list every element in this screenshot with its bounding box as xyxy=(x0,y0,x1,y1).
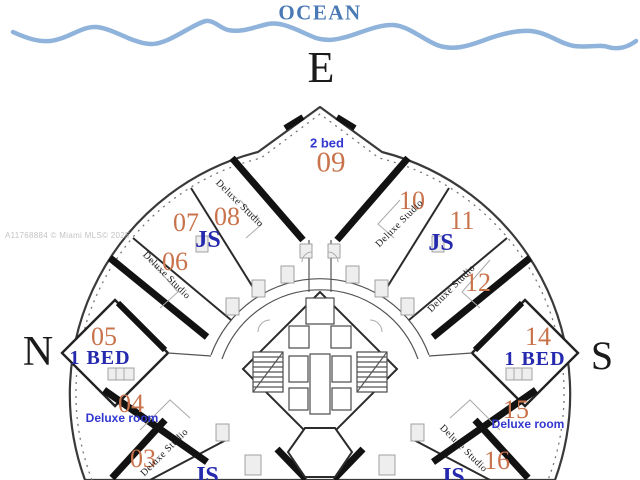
stairwell-right xyxy=(357,352,387,392)
unit-number-14: 14 xyxy=(525,324,551,350)
suite-label-bottom-left: JS xyxy=(193,464,218,480)
unit-type-05: 1 BED xyxy=(69,348,130,368)
ocean-label: OCEAN xyxy=(278,3,361,24)
floor-plan-page: OCEAN E N S A11768884 © Miami MLS© 2025 … xyxy=(0,0,640,480)
unit-type-04: Deluxe room xyxy=(86,412,159,424)
unit-type-11: JS xyxy=(428,231,453,255)
suite-label-bottom-right: JS xyxy=(439,465,464,480)
mls-watermark: A11768884 © Miami MLS© 2025 xyxy=(5,231,130,240)
unit-number-09: 09 xyxy=(317,149,346,178)
unit-type-14: 1 BED xyxy=(504,349,565,369)
compass-north: N xyxy=(23,331,53,373)
unit-type-09: 2 bed xyxy=(310,137,344,150)
unit-number-16: 16 xyxy=(484,448,510,474)
compass-east: E xyxy=(308,46,335,90)
unit-type-15: Deluxe room xyxy=(492,418,565,430)
compass-south: S xyxy=(591,336,613,376)
unit-type-07: JS xyxy=(195,228,220,252)
stairwell-left xyxy=(253,352,283,392)
